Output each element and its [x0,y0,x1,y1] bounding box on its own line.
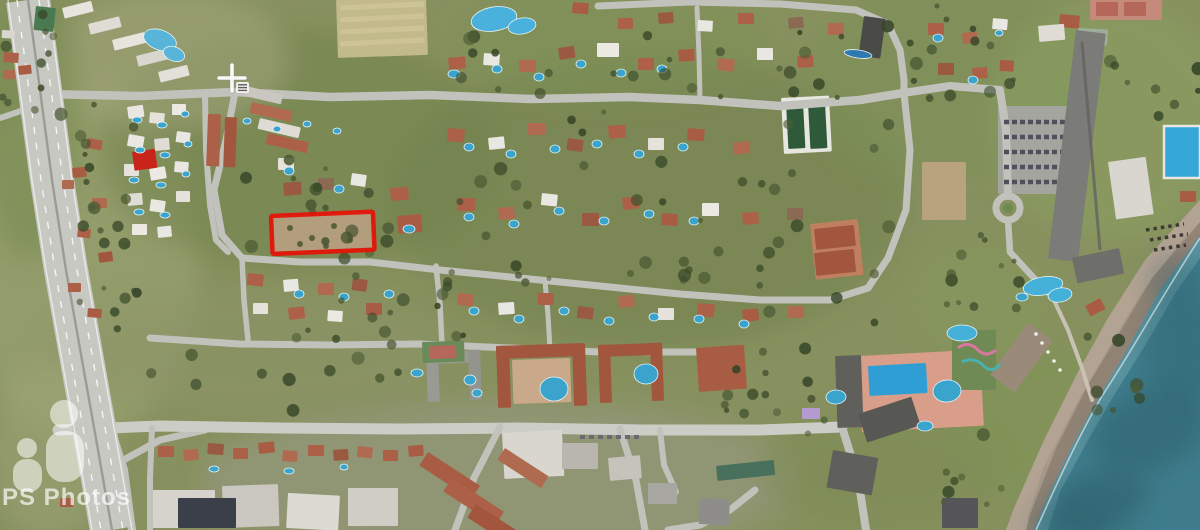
building [318,283,334,295]
tree [601,110,606,115]
building [154,138,170,151]
tree [958,473,965,480]
building [496,346,511,408]
tree [783,119,793,129]
building [283,181,302,196]
tree [739,409,749,419]
tree [982,237,988,243]
building [733,141,751,155]
building [687,128,705,141]
pool [644,210,654,218]
tree [468,48,477,57]
tree [927,44,937,54]
tree [99,238,110,249]
pool [599,217,609,225]
pool [694,315,704,323]
building [283,279,299,292]
pool [464,213,474,221]
building [457,293,474,306]
building [999,60,1014,72]
pool [160,152,170,158]
ground-feature [808,102,827,149]
building [383,450,398,461]
map-canvas [0,0,1200,530]
pool [947,325,977,341]
pool [534,73,544,81]
building [206,114,221,166]
building [678,49,695,62]
tree [451,331,461,341]
pool [739,320,749,328]
bush [287,225,293,231]
pool [411,369,423,377]
tree [1084,333,1092,341]
building [598,345,612,403]
building [757,48,773,60]
pool [469,307,479,315]
tree [323,166,328,171]
tree [313,182,323,192]
pool [334,185,344,193]
tree [292,333,302,343]
tree [283,373,296,386]
tree [678,269,691,282]
tree [1170,100,1180,110]
tree [835,95,840,100]
pool [294,290,304,298]
tree [944,301,950,307]
tree [788,169,796,177]
roundabout-center [1003,203,1013,213]
tree [38,10,48,20]
building [488,136,505,150]
building [18,65,32,75]
tree [78,220,89,231]
pool [157,122,167,128]
tree [713,246,723,256]
tree [998,485,1005,492]
tree [579,161,588,170]
tree [984,501,990,507]
club-umbrella [1052,359,1056,363]
pool [403,225,415,233]
tree [639,256,652,269]
tree [460,332,466,338]
building [327,310,343,322]
tree [698,272,710,284]
pool [678,143,688,151]
pool [182,171,190,177]
tree [687,83,697,93]
tree [724,408,729,413]
tree [1,41,12,52]
building [68,283,81,292]
building [742,212,759,225]
pool [135,147,145,153]
building [787,208,803,220]
tree [338,252,350,264]
tree [491,49,499,57]
tree [387,340,397,350]
pool [550,145,560,153]
building [648,483,677,504]
satellite-image[interactable]: PS Photos [0,0,1200,530]
tree [763,247,775,259]
tree [456,72,467,83]
club-umbrella [1040,341,1044,345]
building [333,449,349,461]
building [98,251,113,263]
building [699,498,730,526]
tree [382,222,394,234]
tree [802,376,813,387]
building [702,203,719,216]
building [351,278,368,292]
building [176,191,190,202]
tree [610,70,616,76]
building [390,187,409,201]
building [738,13,754,24]
tree [984,86,996,98]
building [408,445,424,457]
tree [871,319,879,327]
pool [129,177,139,183]
tree [352,352,365,365]
tree [628,71,639,82]
club-umbrella [1046,350,1050,354]
tree [434,303,440,309]
tree [448,269,455,276]
building [572,344,587,406]
building [3,70,15,79]
building [72,167,87,178]
tree [495,86,501,92]
tree [37,58,46,67]
tree [970,302,979,311]
building [429,345,456,359]
tree [722,390,733,401]
tree [77,299,84,306]
tree [667,57,672,62]
tree [578,129,586,137]
building [2,30,15,39]
tree [535,88,546,99]
building [3,52,19,63]
tree [547,276,552,281]
tree [31,106,39,114]
tree [956,300,961,305]
tree [907,40,914,47]
tree [85,163,94,172]
building [541,193,558,207]
building [558,46,576,60]
tree [88,201,101,214]
tree [379,326,391,338]
building [60,498,73,507]
tree [946,269,956,279]
building [597,43,619,57]
building [87,308,102,318]
tree [511,180,522,191]
pool [284,468,294,474]
tree [831,292,843,304]
building [658,308,674,320]
tree [773,408,781,416]
tree [1110,407,1116,413]
building [519,60,536,72]
tree [769,184,780,195]
tree [367,312,377,322]
building [938,63,954,75]
pool [592,140,602,148]
building [348,488,398,526]
tree [91,102,97,108]
building [697,20,713,32]
building [562,443,598,469]
building [528,123,545,135]
pool [209,466,219,472]
tree [118,238,130,250]
tree [545,69,553,77]
building [648,138,664,150]
pool [968,76,978,84]
tree [82,152,87,157]
tree [762,370,768,376]
tree [338,297,344,303]
ground-feature [1164,126,1200,178]
pool [649,313,659,321]
building [178,498,236,528]
tree [515,272,522,279]
building [308,445,324,456]
pool [333,128,341,134]
tree [1092,404,1103,415]
tree [567,116,576,125]
pool [995,30,1003,36]
building [1124,2,1146,16]
building [788,17,804,29]
tree [821,416,828,423]
building [717,58,735,72]
tree [738,177,748,187]
tree [977,428,990,441]
tree [883,119,894,130]
tree [762,391,770,399]
pool [184,141,192,147]
pool [634,364,658,384]
building [572,2,589,14]
pool [616,69,626,77]
road [58,426,842,430]
tree [510,260,521,271]
building [288,306,305,320]
building [992,18,1008,30]
tree [987,42,995,50]
building [661,213,678,226]
tree [456,198,463,205]
tree [934,3,939,8]
tree [655,156,667,168]
pool [134,209,144,215]
building [448,56,466,70]
tree [679,257,689,267]
tree [287,404,300,417]
ground-feature [814,225,856,250]
building [62,180,74,189]
tree [659,198,666,205]
building [33,6,55,32]
tree [190,379,201,390]
tree [643,31,652,40]
pool [156,182,166,188]
tree [83,179,89,185]
tree [121,194,131,204]
building [1180,191,1196,202]
building [286,493,340,530]
pool [514,315,524,323]
tree [999,263,1005,269]
pool [917,421,933,431]
building [149,199,166,213]
bush [323,243,329,249]
tree [910,57,923,70]
tree [943,16,949,22]
tree [291,176,297,182]
tree [956,249,967,260]
building [207,443,224,455]
building [350,173,367,187]
building [802,408,820,419]
tree [784,66,797,79]
tree [1134,393,1145,404]
tree [132,288,142,298]
pool [284,167,294,175]
tree [394,368,402,376]
building [638,58,654,70]
tree [756,264,764,272]
pool [273,126,281,132]
tree [763,305,775,317]
tree [42,28,49,35]
tree [97,227,103,233]
building [158,446,174,457]
tree [839,34,845,40]
pool [554,207,564,215]
building [357,446,373,459]
tree [54,108,67,121]
tree [129,122,138,131]
tree [970,36,979,45]
tree [1131,385,1140,394]
tree [941,499,947,505]
tree [721,401,729,409]
tree [119,293,130,304]
tree [759,348,767,356]
tree [322,205,329,212]
pool [464,375,476,385]
tree [112,221,123,232]
tree [788,86,799,97]
building [538,293,554,305]
building [608,125,626,139]
pool [243,118,251,124]
tree [970,26,977,33]
road [150,428,152,530]
tree [627,270,634,277]
tree [1112,334,1125,347]
tree [805,430,811,436]
pool [506,150,516,158]
tree [437,288,449,300]
tree [1110,61,1119,70]
tree [1154,111,1164,121]
tree [397,293,410,306]
tree [81,139,91,149]
building [566,138,584,152]
bush [309,235,315,241]
ground-feature [814,249,856,276]
building [223,117,237,167]
pool [540,377,568,401]
building [1108,157,1154,220]
tree [387,310,393,316]
building [447,128,465,142]
building [157,226,172,238]
building [788,306,804,318]
tree [101,286,106,291]
building [928,23,944,35]
building [498,302,515,315]
tree [1012,303,1021,312]
club-umbrella [1034,332,1038,336]
building [577,306,594,320]
tree [352,272,360,280]
tree [1090,386,1103,399]
bush [347,237,353,243]
tree [807,395,815,403]
tree [482,231,491,240]
tree [375,373,384,382]
building [658,12,674,24]
pool [303,121,311,127]
building [183,449,199,461]
tree [1151,84,1160,93]
tree [747,389,758,400]
pool [604,317,614,325]
ground-feature [922,162,966,220]
tree [240,172,252,184]
pool [492,65,502,73]
tree [380,235,393,248]
pool [340,464,348,470]
building [1096,2,1118,16]
tree [944,89,956,101]
tree [882,20,894,32]
tree [631,194,643,206]
tree [114,325,121,332]
building [282,450,298,462]
tree [943,469,950,476]
tree [813,78,825,90]
tree [1125,80,1131,86]
building [253,303,268,314]
tree [758,180,766,188]
tree [716,47,725,56]
tree [185,349,197,361]
tree [1013,276,1025,288]
tree [1011,77,1016,82]
tree [245,240,258,253]
